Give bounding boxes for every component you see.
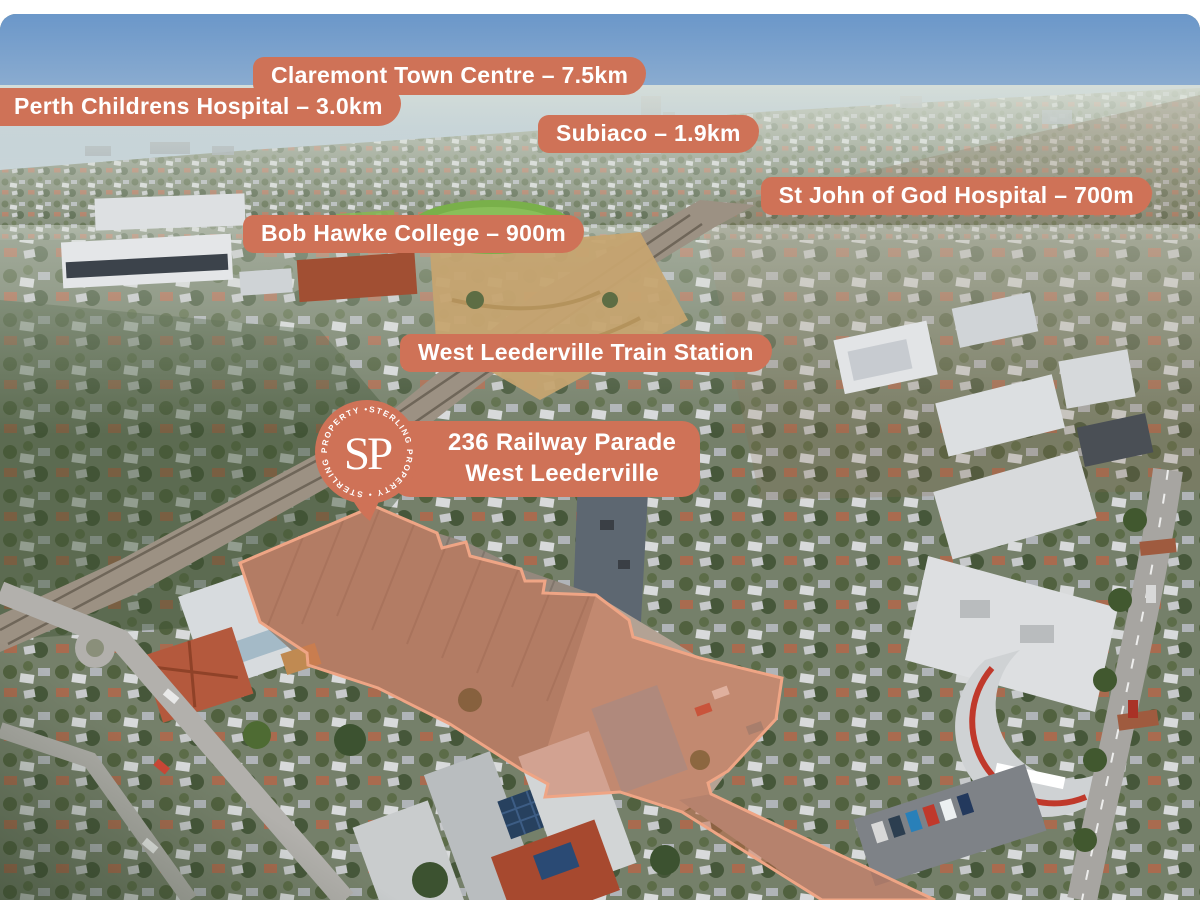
sterling-property-logo-pin: STERLING PROPERTY • STERLING PROPERTY • …	[310, 397, 432, 529]
property-address-line1: 236 Railway Parade	[448, 427, 676, 458]
distance-label-subiaco: Subiaco – 1.9km	[538, 115, 759, 153]
aerial-photo: Claremont Town Centre – 7.5kmPerth Child…	[0, 14, 1200, 900]
distance-label-bob-hawke-college: Bob Hawke College – 900m	[243, 215, 584, 253]
distance-label-west-leederville-train-station: West Leederville Train Station	[400, 334, 772, 372]
marketing-image-frame: Claremont Town Centre – 7.5kmPerth Child…	[0, 0, 1200, 900]
distance-label-perth-childrens-hospital: Perth Childrens Hospital – 3.0km	[0, 88, 401, 126]
property-address-label: 236 Railway Parade West Leederville	[392, 421, 700, 497]
distance-label-st-john-of-god-hospital: St John of God Hospital – 700m	[761, 177, 1152, 215]
logo-initials: SP	[344, 428, 392, 480]
property-address-line2: West Leederville	[448, 458, 676, 489]
